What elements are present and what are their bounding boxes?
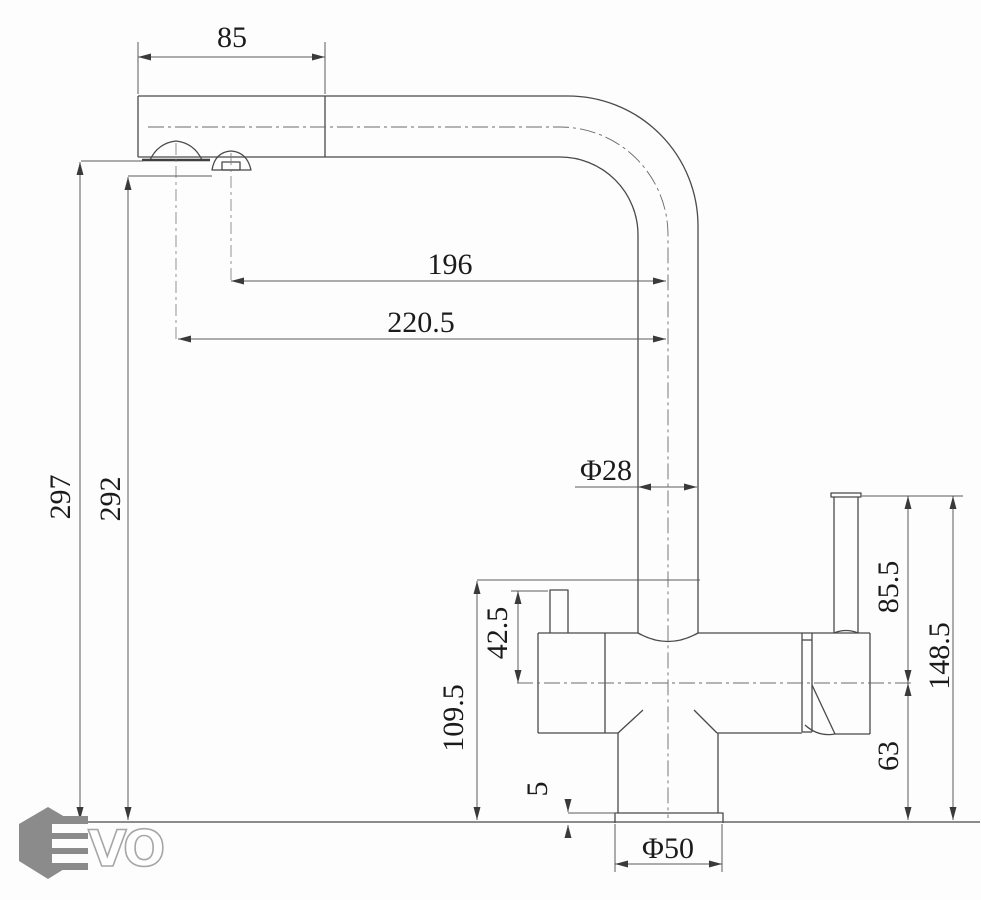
neck-chamfer-left — [618, 710, 643, 733]
dimension-63: 63 — [872, 683, 908, 820]
dimension-label-phi28: Φ28 — [580, 454, 632, 487]
dimension-label-85: 85 — [217, 21, 247, 54]
handle-cap — [831, 493, 861, 497]
dimension-label-phi50: Φ50 — [642, 832, 694, 865]
dimension-label-42-5: 42.5 — [481, 607, 514, 660]
dimension-phi28: Φ28 — [575, 454, 697, 487]
lever-pivot-diagonal — [812, 685, 835, 734]
dimension-label-85-5: 85.5 — [872, 561, 905, 614]
spout-outer-edge — [138, 96, 698, 633]
evo-e-slot-2 — [52, 839, 88, 848]
dimension-5: 5 — [521, 782, 617, 839]
dimension-292: 292 — [94, 176, 212, 820]
dimension-label-297: 297 — [44, 475, 77, 520]
dimension-196: 196 — [231, 248, 666, 281]
dimension-label-109-5: 109.5 — [437, 684, 470, 752]
evo-e-slot-1 — [52, 824, 88, 833]
drawing-canvas: 85 196 220.5 297 292 Φ28 42.5 109.5 5 — [0, 0, 981, 900]
faucet-outline — [75, 96, 980, 823]
faucet-dimension-drawing: 85 196 220.5 297 292 Φ28 42.5 109.5 5 — [0, 0, 981, 900]
centerlines — [148, 127, 915, 818]
dimension-label-196: 196 — [428, 248, 473, 281]
dimension-label-292: 292 — [94, 477, 127, 522]
dimension-label-220-5: 220.5 — [387, 306, 455, 339]
evo-logo: VO — [19, 807, 163, 879]
dimension-label-5: 5 — [521, 782, 554, 797]
spout-inner-edge — [138, 157, 638, 633]
evo-logo-vo-text: VO — [88, 820, 163, 878]
outlet-dome — [212, 151, 251, 170]
dimension-220-5: 220.5 — [178, 306, 666, 339]
lever-pivot-arc — [805, 725, 835, 735]
dimension-85: 85 — [138, 21, 325, 94]
dimension-label-148-5: 148.5 — [923, 622, 956, 690]
dimension-148-5: 148.5 — [923, 496, 956, 820]
diverter-knob — [550, 590, 568, 633]
dimension-phi50: Φ50 — [615, 824, 722, 872]
neck-chamfer-right — [694, 710, 717, 733]
dimension-label-63: 63 — [872, 741, 905, 771]
evo-e-slot-3 — [52, 854, 88, 863]
